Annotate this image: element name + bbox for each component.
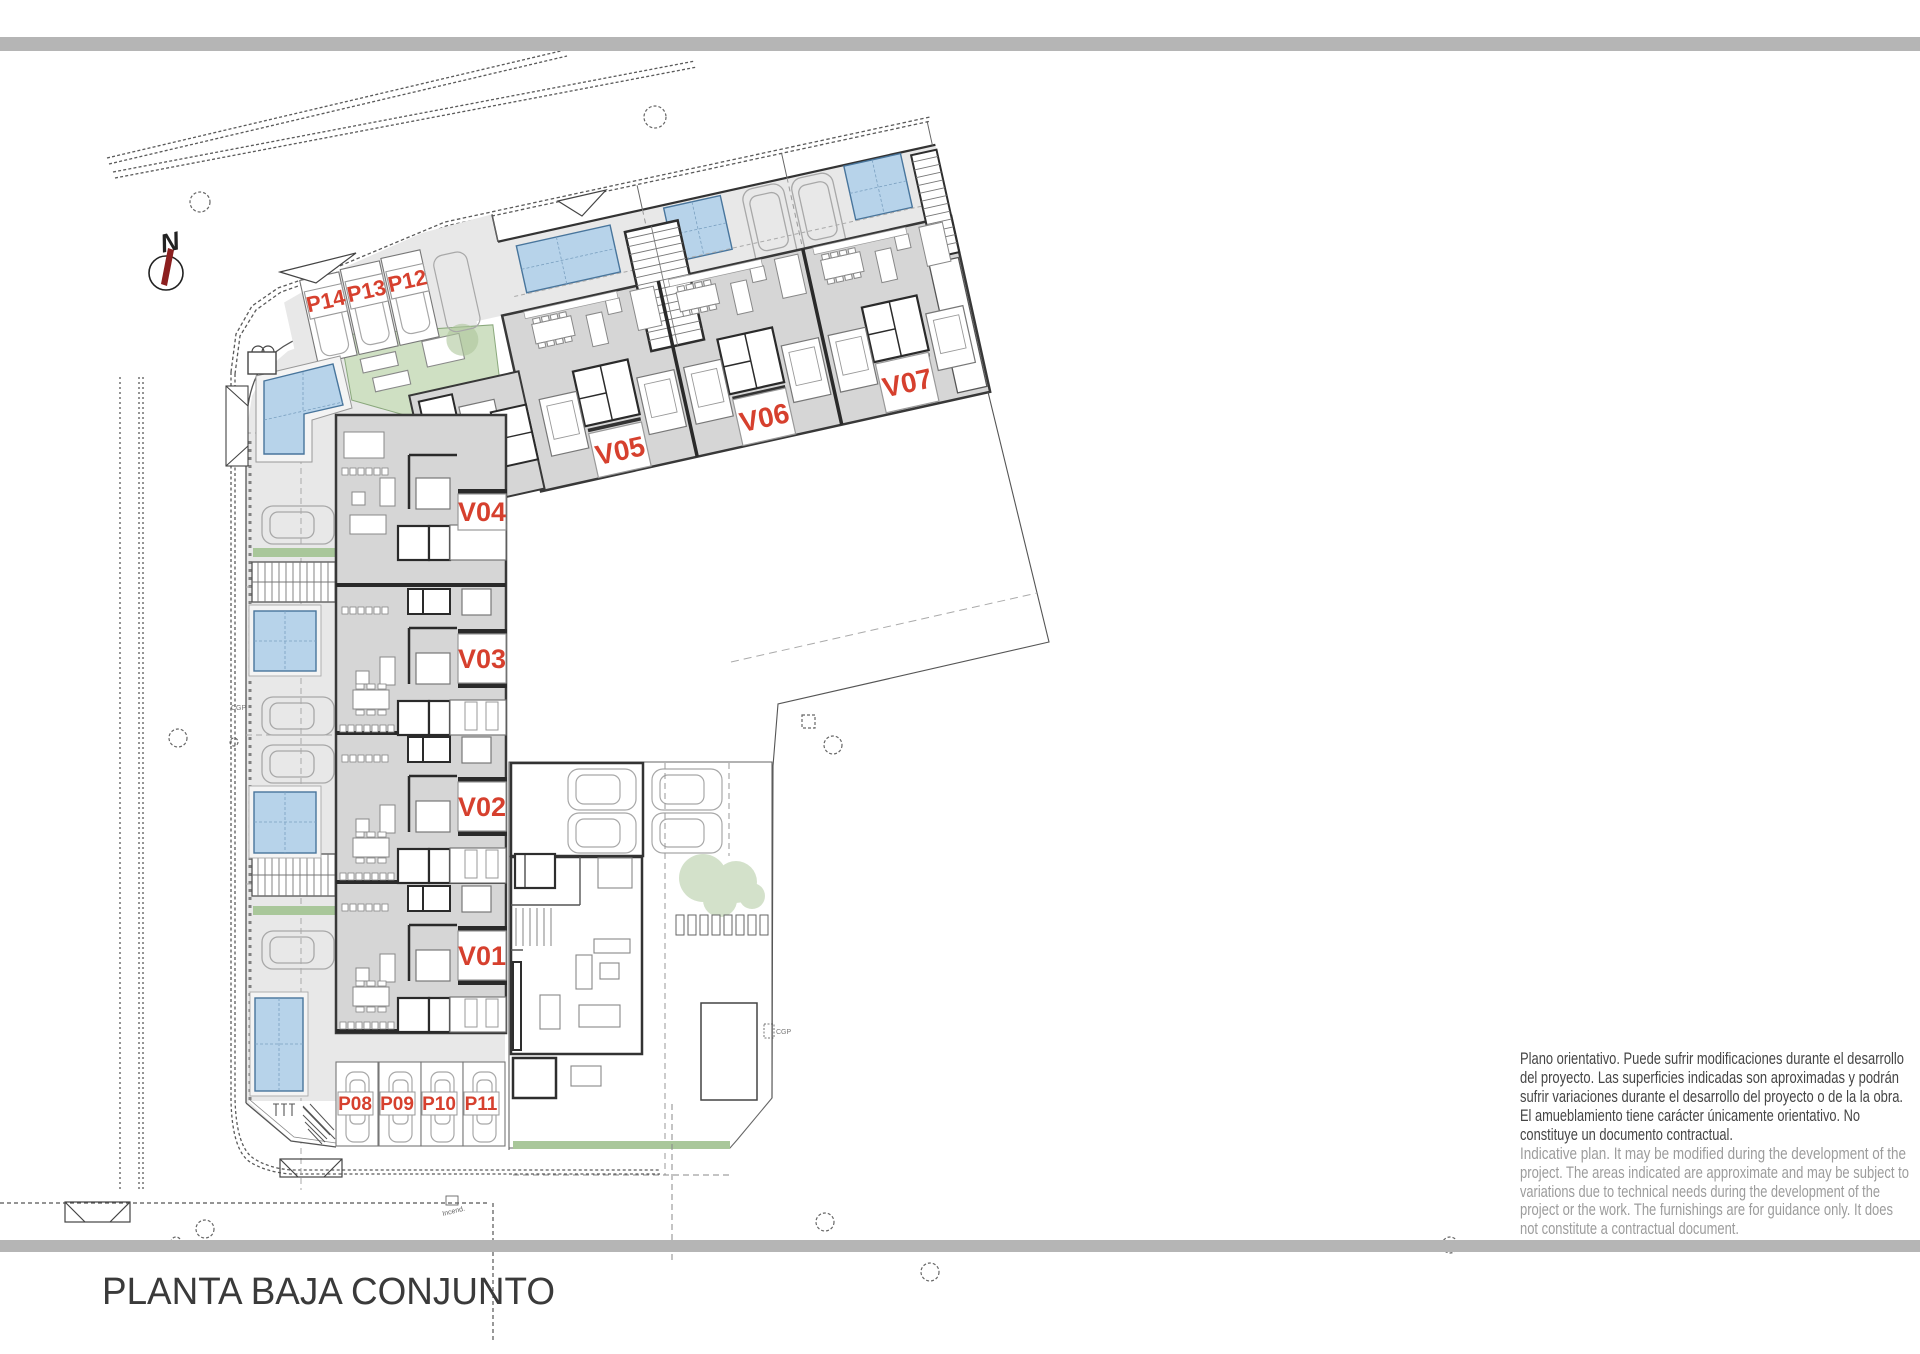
svg-text:El amueblamiento tiene carácte: El amueblamiento tiene carácter únicamen… — [1520, 1107, 1860, 1125]
svg-text:project. The areas indicated a: project. The areas indicated are approxi… — [1520, 1164, 1909, 1182]
svg-text:P10: P10 — [422, 1094, 456, 1115]
svg-text:project or the work. The furni: project or the work. The furnishings are… — [1520, 1201, 1893, 1219]
svg-text:variations due to technical ne: variations due to technical needs during… — [1520, 1183, 1880, 1201]
svg-text:V01: V01 — [458, 941, 506, 971]
svg-text:CGP: CGP — [776, 1029, 792, 1036]
svg-text:sufrir variaciones durante el: sufrir variaciones durante el desarrollo… — [1520, 1088, 1903, 1106]
svg-text:V03: V03 — [458, 644, 506, 674]
svg-text:PLANTA BAJA CONJUNTO: PLANTA BAJA CONJUNTO — [102, 1271, 555, 1313]
svg-text:V04: V04 — [458, 497, 506, 527]
svg-text:P09: P09 — [380, 1094, 414, 1115]
svg-text:Plano orientativo. Puede sufri: Plano orientativo. Puede sufrir modifica… — [1520, 1050, 1904, 1068]
svg-text:del proyecto. Las superficies: del proyecto. Las superficies indicadas … — [1520, 1069, 1899, 1087]
svg-text:Indicative plan. It may be mod: Indicative plan. It may be modified duri… — [1520, 1145, 1906, 1163]
svg-text:V02: V02 — [458, 792, 506, 822]
svg-text:CGP: CGP — [231, 705, 247, 712]
svg-text:not constitute a contractual d: not constitute a contractual document. — [1520, 1220, 1739, 1238]
svg-text:P08: P08 — [338, 1094, 372, 1115]
svg-text:constituye un documento contra: constituye un documento contractual. — [1520, 1126, 1733, 1144]
svg-text:P11: P11 — [465, 1094, 498, 1115]
